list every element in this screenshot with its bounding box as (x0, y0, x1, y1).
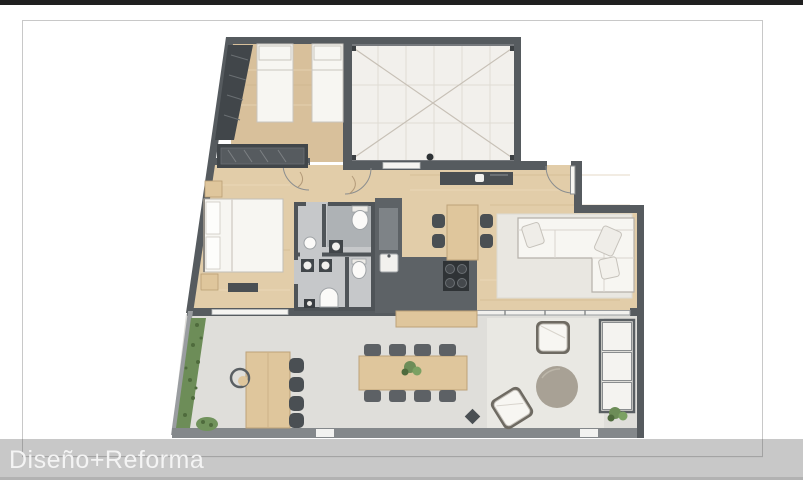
bed-bench (228, 283, 258, 292)
window-hall (383, 163, 420, 169)
floor-plan (0, 0, 803, 480)
wall-living-top (574, 205, 644, 213)
entry-door-leaf (571, 166, 576, 194)
wall-bottom-corner (630, 308, 644, 316)
bathrooms (294, 202, 375, 311)
bed-2-pillow (314, 46, 341, 60)
caption-bar: Diseño+Reforma (0, 439, 803, 480)
wall-right (637, 207, 644, 316)
wall-patio-left (343, 44, 352, 164)
plant-bush (196, 417, 218, 431)
toilet1-bowl (352, 211, 368, 230)
master-pillow-2 (206, 237, 220, 269)
nightstand-1 (205, 181, 222, 197)
nightstand-2 (201, 274, 218, 290)
sofa-pillow-3 (598, 256, 620, 279)
master-pillow-1 (206, 202, 220, 234)
bath-floor-unit-basin (307, 301, 312, 306)
wall-patio-bottom (343, 161, 521, 170)
counter-panel (379, 208, 398, 250)
video-frame: Diseño+Reforma (0, 0, 803, 480)
glass-door (477, 310, 630, 316)
vanity2-basin (304, 262, 312, 270)
round-coffee-table (536, 366, 578, 408)
wall-entry-a (521, 161, 547, 170)
bed-1-pillow (259, 46, 291, 60)
kitchen-faucet (387, 254, 390, 257)
parapet-notch-2 (580, 429, 598, 437)
terrace-bench (396, 311, 477, 327)
terrace-parapet-bottom (172, 428, 644, 438)
caption-text: Diseño+Reforma (9, 446, 204, 475)
trellis (600, 320, 634, 422)
lounge-armchair-1-cushion (539, 324, 567, 351)
vanity3-basin (322, 262, 330, 270)
sideboard-decor (475, 174, 484, 182)
patio (343, 40, 521, 170)
wall-top (226, 37, 521, 44)
shower-tray (320, 288, 338, 307)
toilet2-bowl (352, 262, 366, 279)
wardrobe-bottom-inner (221, 148, 304, 164)
desk-round-chair-seat (238, 376, 248, 386)
window-master (212, 310, 288, 315)
living-room (497, 214, 634, 298)
sink1 (304, 237, 316, 249)
parapet-notch-1 (316, 429, 334, 437)
vanity1-basin (332, 243, 340, 251)
patio-drain (427, 154, 434, 161)
island-table (447, 205, 478, 260)
terrace-wall-right (637, 316, 644, 438)
wall-patio-right (514, 37, 521, 163)
